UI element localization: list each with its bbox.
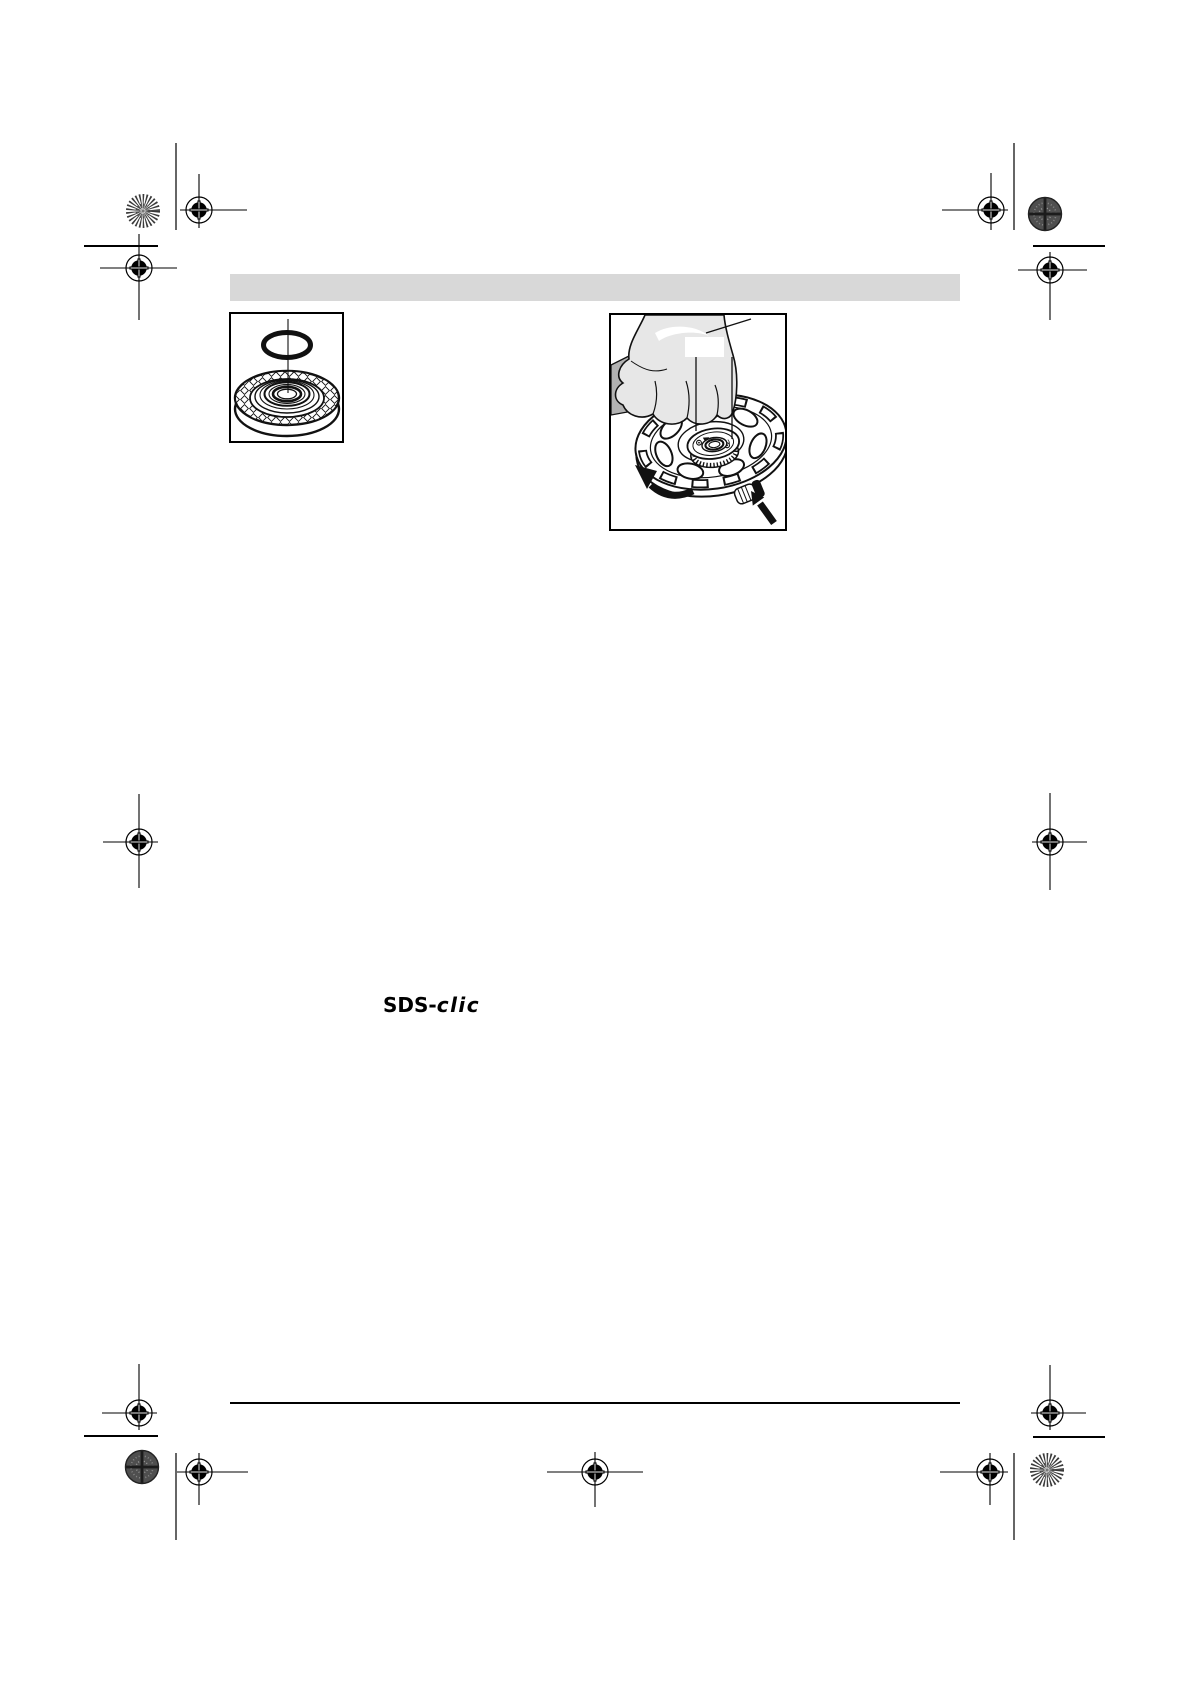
- print-marks: [0, 0, 1190, 1684]
- figure-cup-wheel-mounting: [609, 313, 787, 531]
- registration-target-icon: [942, 173, 1008, 230]
- registration-target-icon: [940, 1453, 1008, 1505]
- starburst-mark-icon: [1037, 1460, 1057, 1480]
- sds-clic-logo-suffix: clic: [437, 993, 480, 1017]
- gloved-hand: [611, 315, 751, 424]
- halftone-patch-icon: [1029, 198, 1062, 231]
- starburst-mark-icon: [133, 201, 153, 221]
- registration-target-icon: [102, 1364, 157, 1430]
- figure-oring-backing-flange: [229, 312, 344, 443]
- halftone-patch-icon: [126, 1451, 159, 1484]
- cup-wheel-hand-illustration: [611, 315, 785, 529]
- registration-target-icon: [103, 794, 158, 888]
- section-header-bar: [230, 274, 960, 301]
- registration-target-icon: [1031, 1365, 1086, 1430]
- callout-patch: [685, 337, 724, 357]
- registration-target-icon: [547, 1452, 643, 1507]
- sds-clic-logo-prefix: SDS-: [383, 993, 437, 1017]
- oring-backing-flange-illustration: [231, 314, 342, 441]
- footer-rule: [230, 1402, 960, 1404]
- registration-target-icon: [1018, 252, 1087, 320]
- registration-target-icon: [1032, 793, 1087, 890]
- manual-page: SDS-clic: [0, 0, 1190, 1684]
- sds-clic-logo: SDS-clic: [383, 993, 480, 1015]
- registration-target-icon: [180, 174, 247, 228]
- registration-target-icon: [177, 1453, 248, 1505]
